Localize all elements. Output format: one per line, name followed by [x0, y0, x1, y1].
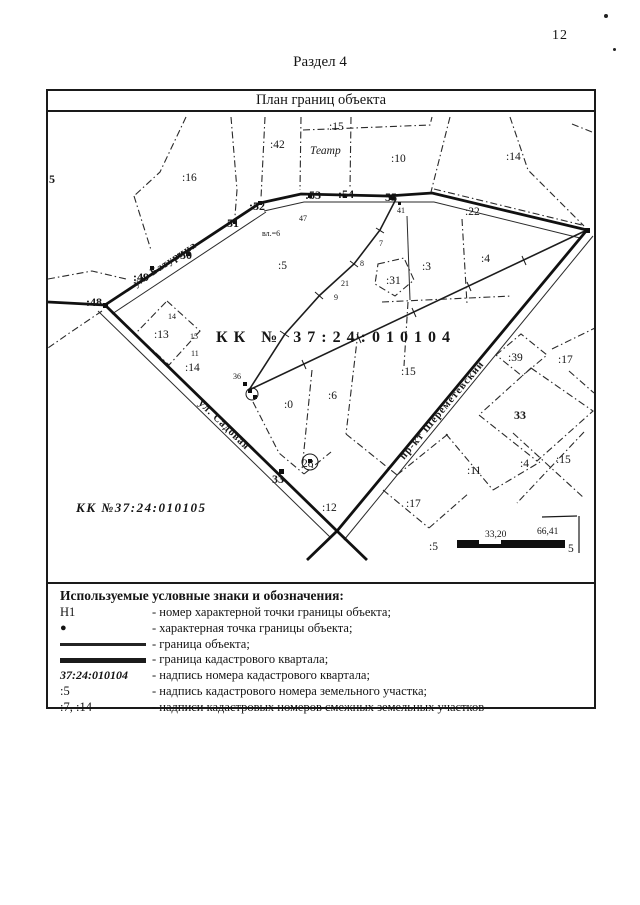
point-label: 8 — [360, 259, 364, 268]
parcel-label: :31 — [386, 275, 401, 287]
street-edge — [344, 236, 593, 540]
parcel-label: 5 — [49, 172, 55, 186]
parcel-line — [346, 332, 358, 434]
parcel-line — [48, 271, 126, 279]
parcel-label: :42 — [270, 139, 285, 151]
quarter-boundary — [249, 199, 396, 390]
parcel-line — [462, 219, 467, 304]
parcel-line — [253, 402, 304, 474]
point-label: 7 — [379, 239, 383, 248]
parcel-label: :11 — [467, 465, 482, 477]
parcel-line — [134, 196, 151, 250]
parcel-label: :14 — [185, 362, 200, 374]
parcel-line — [300, 117, 301, 190]
quarter-number-main: КК № 37:24:010104 — [216, 329, 456, 346]
scan-speck — [613, 48, 616, 51]
legend-row: ● - характерная точка границы объекта; — [60, 621, 594, 637]
point-label: :48 — [86, 295, 102, 309]
street-edge — [264, 202, 580, 238]
boundary-point — [585, 228, 590, 233]
parcel-line — [552, 328, 594, 349]
parcel-label: :10 — [391, 153, 406, 165]
parcel-label: :17 — [406, 498, 421, 510]
parcel-line — [572, 124, 592, 132]
point-label: 11 — [191, 349, 199, 358]
legend-row: Н1 - номер характерной точки границы объ… — [60, 605, 594, 621]
cadastral-map-svg: 33,20 66,41 :5 5 КК № 37:24:010104 КК №3… — [48, 112, 594, 582]
legend-text: - надпись номера кадастрового квартала; — [152, 668, 594, 684]
boundary-point — [243, 382, 247, 386]
point-label: 33 — [272, 472, 284, 486]
point-label: :50 — [176, 248, 192, 262]
parcel-line — [134, 117, 186, 196]
scale-value: 66,41 — [537, 527, 559, 537]
legend-symbol-point-number: Н1 — [60, 605, 152, 621]
parcel-label: :15 — [556, 454, 571, 466]
parcel-label: :22 — [465, 206, 480, 218]
quarter-boundary — [249, 230, 587, 390]
scale-value: 33,20 — [485, 530, 507, 540]
parcel-label: :13 — [154, 329, 169, 341]
parcel-label: :12 — [322, 502, 337, 514]
parcel-label: :0 — [284, 399, 293, 411]
point-label: 51 — [227, 216, 239, 230]
quarter-number-secondary: КК №37:24:010105 — [75, 500, 206, 515]
parcel-line — [431, 117, 450, 192]
point-label: :49 — [133, 270, 149, 284]
legend-symbol-point-dot: ● — [60, 621, 152, 637]
object-boundary-line-sample — [60, 643, 146, 646]
parcel-dashed-lines — [48, 117, 594, 528]
scan-speck — [604, 14, 608, 18]
legend-symbol-adjacent-parcels: :7, :14 — [60, 700, 152, 716]
legend-row: :7, :14 - надписи кадастровых номеров см… — [60, 700, 594, 716]
plan-title: План границ объекта — [48, 91, 594, 112]
parcel-line — [479, 368, 593, 461]
quarter-boundary-line-sample — [60, 658, 146, 663]
parcel-label: 33 — [514, 408, 526, 422]
parcel-line — [261, 117, 265, 198]
boundary-point — [398, 202, 401, 205]
page-number: 12 — [552, 28, 568, 44]
legend-symbol-quarter-boundary — [60, 652, 152, 668]
parcel-label: :16 — [182, 172, 197, 184]
point-label: 28 — [302, 458, 314, 470]
scale-bar-tick — [542, 516, 577, 517]
street-edge — [407, 216, 410, 300]
point-label: 15 — [190, 332, 198, 341]
legend: Используемые условные знаки и обозначени… — [48, 582, 594, 705]
section-title: Раздел 4 — [0, 54, 640, 71]
scale-bar-segment — [479, 540, 501, 544]
boundary-point — [335, 529, 339, 533]
legend-text: - характерная точка границы объекта; — [152, 621, 594, 637]
plan-border-box: План границ объекта — [46, 89, 596, 709]
scale-left-label: :5 — [429, 541, 438, 553]
street-name-bottom: ул. Садовая — [196, 398, 252, 452]
point-label: 55 — [385, 190, 397, 204]
legend-text: - надпись кадастрового номера земельного… — [152, 684, 594, 700]
point-label: :53 — [305, 188, 321, 202]
cadastral-map: 33,20 66,41 :5 5 КК № 37:24:010104 КК №3… — [48, 112, 594, 582]
scale-bar: 33,20 66,41 :5 5 — [429, 516, 579, 555]
scale-bar-band — [457, 540, 565, 548]
legend-symbol-object-boundary — [60, 637, 152, 653]
legend-text: - номер характерной точки границы объект… — [152, 605, 594, 621]
parcel-label: :3 — [422, 261, 431, 273]
legend-title: Используемые условные знаки и обозначени… — [60, 588, 594, 604]
point-label: 41 — [397, 206, 405, 215]
legend-symbol-parcel-number: :5 — [60, 684, 152, 700]
legend-text: - граница объекта; — [152, 637, 594, 653]
legend-row: - граница кадастрового квартала; — [60, 652, 594, 668]
parcel-label: :17 — [558, 354, 573, 366]
legend-symbol-quarter-number: 37:24:010104 — [60, 668, 152, 684]
point-label: :54 — [338, 187, 354, 201]
point-label: 14 — [168, 312, 176, 321]
legend-text: - надписи кадастровых номеров смежных зе… — [152, 700, 594, 716]
point-label: :52 — [249, 199, 265, 213]
parcel-label: :39 — [508, 352, 523, 364]
street-edge — [112, 212, 266, 314]
building-name-label: Театр — [310, 145, 341, 157]
point-label: 36 — [233, 372, 241, 381]
point-label: 47 — [299, 214, 307, 223]
parcel-line — [303, 117, 432, 130]
parcel-line — [569, 371, 594, 393]
parcel-line — [231, 117, 237, 216]
boundary-point — [103, 303, 108, 308]
parcel-line — [446, 434, 493, 490]
legend-row: - граница объекта; — [60, 637, 594, 653]
parcel-label: :15 — [329, 121, 344, 133]
parcel-label: :4 — [520, 458, 529, 470]
parcel-label: :15 — [401, 366, 416, 378]
parcel-label: :14 — [506, 151, 521, 163]
parcel-label: :4 — [481, 253, 490, 265]
point-label: 9 — [334, 293, 338, 302]
point-label: 21 — [341, 279, 349, 288]
parcel-label: :5 — [278, 260, 287, 272]
legend-text: - граница кадастрового квартала; — [152, 652, 594, 668]
parcel-line — [48, 311, 102, 348]
scale-right-label: 5 — [568, 543, 574, 555]
legend-row: :5 - надпись кадастрового номера земельн… — [60, 684, 594, 700]
parcel-line — [429, 493, 469, 528]
annotation-label: вл.=6 — [262, 229, 280, 238]
legend-row: 37:24:010104 - надпись номера кадастрово… — [60, 668, 594, 684]
parcel-label: :6 — [328, 390, 337, 402]
